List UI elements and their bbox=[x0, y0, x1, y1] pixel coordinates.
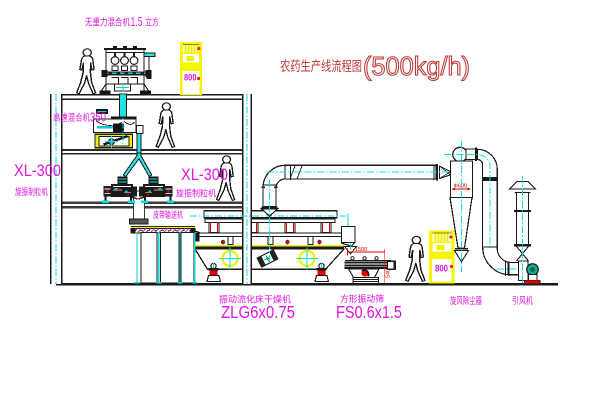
svg-text:引风机: 引风机 bbox=[512, 295, 533, 307]
svg-text:农药生产线流程图: 农药生产线流程图 bbox=[280, 59, 362, 74]
svg-text:FS0.6x1.5: FS0.6x1.5 bbox=[336, 302, 402, 322]
svg-text:800: 800 bbox=[184, 73, 197, 84]
svg-text:高速混合机: 高速混合机 bbox=[53, 112, 90, 124]
svg-text:XL-300: XL-300 bbox=[14, 161, 61, 180]
svg-text:无重力混合机: 无重力混合机 bbox=[85, 17, 130, 29]
svg-text:旋风除尘器: 旋风除尘器 bbox=[450, 295, 482, 307]
svg-text:旋振制粒机: 旋振制粒机 bbox=[15, 186, 48, 197]
svg-text:ZLG6x0.75: ZLG6x0.75 bbox=[221, 302, 295, 322]
svg-text:立方: 立方 bbox=[145, 17, 159, 29]
svg-text:Φ600: Φ600 bbox=[454, 184, 468, 190]
svg-text:(500kg/h): (500kg/h) bbox=[363, 51, 470, 81]
svg-text:皮带输送机: 皮带输送机 bbox=[153, 209, 183, 220]
svg-text:800: 800 bbox=[435, 264, 448, 275]
svg-text:旋振制粒机: 旋振制粒机 bbox=[176, 188, 216, 199]
svg-text:350: 350 bbox=[90, 111, 106, 125]
svg-text:XL-300: XL-300 bbox=[181, 165, 228, 184]
svg-text:1.5: 1.5 bbox=[131, 15, 143, 29]
svg-text:1500: 1500 bbox=[355, 247, 367, 253]
svg-text:540: 540 bbox=[386, 269, 392, 278]
